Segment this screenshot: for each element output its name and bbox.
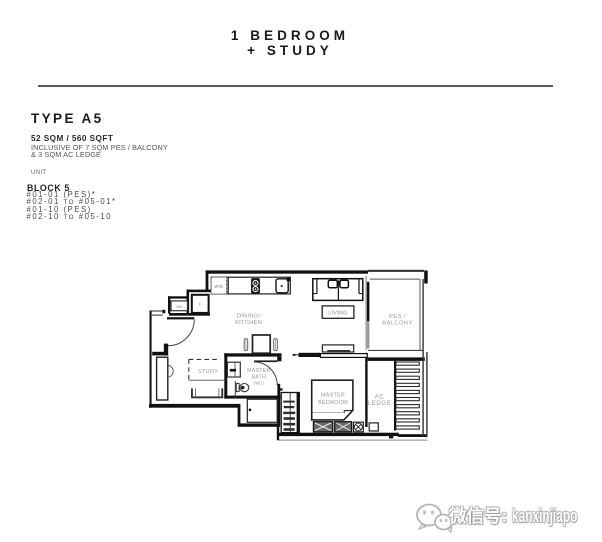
svg-text:LEDGE: LEDGE: [368, 401, 391, 407]
svg-text:W/D: W/D: [215, 284, 224, 289]
svg-text:LIVING: LIVING: [328, 310, 348, 316]
svg-text:DB: DB: [176, 304, 182, 309]
svg-text:BALCONY: BALCONY: [382, 320, 413, 326]
svg-text:DINING/: DINING/: [237, 314, 260, 320]
svg-text:BEDROOM: BEDROOM: [318, 400, 348, 406]
svg-text:KITCHEN: KITCHEN: [235, 320, 262, 326]
svg-text:PES /: PES /: [389, 314, 406, 320]
svg-text:AC: AC: [375, 395, 385, 401]
svg-text:STUDY: STUDY: [198, 369, 218, 375]
svg-text:MASTER: MASTER: [321, 392, 345, 398]
svg-text:(WC): (WC): [254, 381, 265, 386]
svg-text:MASTER: MASTER: [247, 368, 270, 374]
